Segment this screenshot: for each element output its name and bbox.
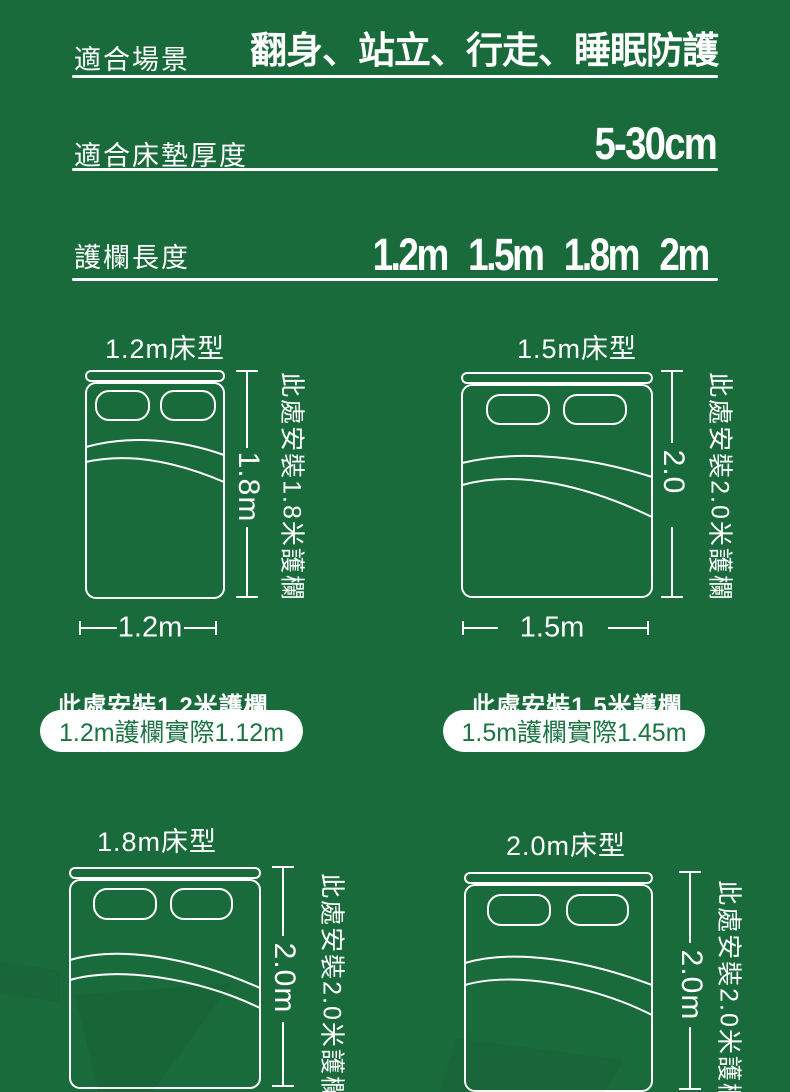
actual-size-badge: 1.2m護欄實際1.12m	[40, 710, 303, 752]
bed-blanket-line-2	[86, 458, 224, 482]
bed-headboard	[465, 873, 652, 883]
actual-size-badge: 1.5m護欄實際1.45m	[443, 710, 705, 752]
length-option: 2m	[660, 232, 708, 277]
dim-segment	[462, 627, 498, 629]
bed-pillow-left	[488, 895, 550, 925]
guardrail-infographic: 適合場景 翻身、站立、行走、睡眠防護 適合床墊厚度 5-30cm 護欄長度 1.…	[0, 0, 790, 1092]
bed-blanket-line-2	[462, 479, 652, 517]
dim-segment	[689, 871, 691, 943]
bed-title: 1.2m床型	[105, 327, 225, 366]
actual-size-text: 1.5m護欄實際1.45m	[461, 713, 686, 749]
bed-title: 2.0m床型	[506, 824, 626, 863]
spec-value-scenario: 翻身、站立、行走、睡眠防護	[250, 32, 718, 69]
dim-segment	[246, 527, 248, 597]
length-option: 1.5m	[468, 232, 542, 277]
side-install-note: 此處安裝1.8米護欄	[279, 372, 304, 602]
bed-pillow-right	[171, 889, 232, 919]
actual-size-text: 1.2m護欄實際1.12m	[59, 713, 284, 749]
length-option: 1.2m	[373, 232, 447, 277]
bed-pillow-right	[161, 391, 215, 420]
dim-segment	[184, 627, 217, 629]
dim-segment	[79, 627, 117, 629]
bed-pillow-right	[567, 895, 628, 925]
bed-pillow-right	[564, 395, 626, 424]
bed-body	[86, 383, 224, 598]
bed-body	[462, 385, 652, 597]
dim-tick	[215, 621, 217, 635]
bed-headboard	[462, 373, 652, 383]
bed-title: 1.8m床型	[97, 820, 217, 859]
bed-width-dimension: 1.5m	[520, 614, 584, 643]
bed-width-dimension: 1.2m	[118, 614, 182, 643]
bed-headboard	[86, 371, 224, 381]
divider-line	[72, 75, 718, 78]
side-install-note: 此處安裝2.0米護欄	[707, 372, 732, 602]
spec-label-scenario: 適合場景	[74, 38, 190, 77]
bed-diagram-top-view	[460, 369, 654, 601]
dim-cap	[236, 596, 258, 598]
dim-tick	[647, 621, 649, 635]
bed-diagram-top-view	[84, 369, 226, 601]
dim-cap	[661, 596, 683, 598]
bed-blanket-line-1	[86, 440, 224, 455]
dim-segment	[282, 866, 284, 936]
divider-line	[72, 278, 718, 281]
bed-height-dimension: 1.8m	[233, 452, 263, 523]
dim-segment	[608, 627, 648, 629]
bed-pillow-left	[94, 889, 156, 919]
length-option: 1.8m	[564, 232, 638, 277]
watermark	[0, 950, 790, 1092]
bed-height-dimension: 2.0	[658, 450, 688, 495]
spec-value-mattress-thickness: 5-30cm	[594, 121, 716, 166]
bed-blanket-line-1	[462, 456, 652, 477]
divider-line	[72, 168, 718, 171]
dim-segment	[671, 370, 673, 443]
bed-pillow-left	[487, 395, 549, 424]
bed-headboard	[70, 868, 260, 878]
guardrail-length-options: 1.2m 1.5m 1.8m 2m	[373, 232, 708, 277]
bed-title: 1.5m床型	[517, 327, 637, 366]
dim-segment	[671, 527, 673, 597]
bed-pillow-left	[96, 391, 149, 420]
dim-segment	[246, 370, 248, 448]
spec-label-guardrail-length: 護欄長度	[74, 236, 190, 275]
